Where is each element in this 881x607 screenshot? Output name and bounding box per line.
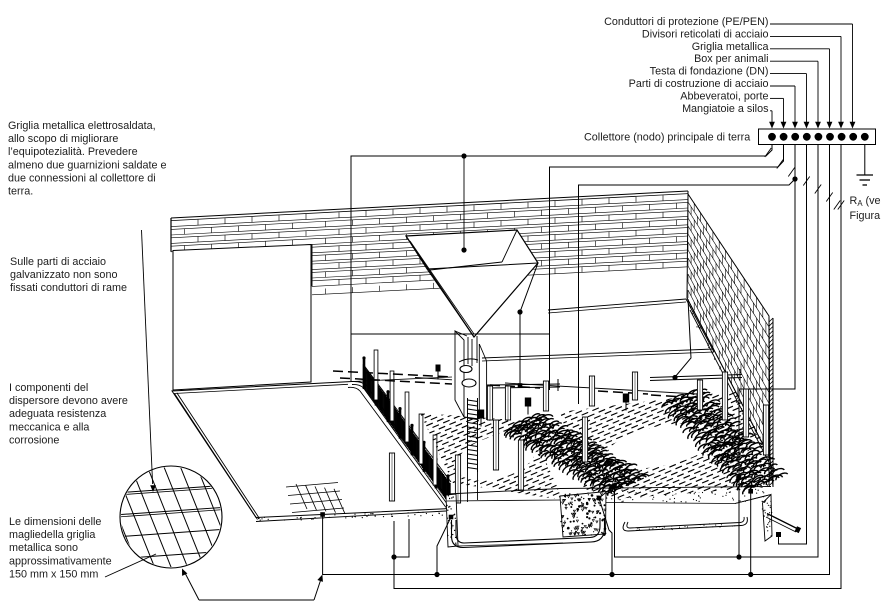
svg-text:Parti di costruzione di acciai: Parti di costruzione di acciaio <box>629 78 769 90</box>
svg-text:due connessioni al collettore: due connessioni al collettore di <box>8 172 156 184</box>
svg-text:Griglia metallica elettrosalda: Griglia metallica elettrosaldata, <box>8 120 156 132</box>
svg-text:terra.: terra. <box>8 186 33 198</box>
svg-text:Testa di fondazione (DN): Testa di fondazione (DN) <box>650 66 769 78</box>
svg-text:150 mm x 150 mm: 150 mm x 150 mm <box>9 568 98 580</box>
svg-text:galvanizzato non sono: galvanizzato non sono <box>10 269 117 281</box>
svg-text:fissati conduttori di rame: fissati conduttori di rame <box>10 282 127 294</box>
svg-text:adeguata resistenza: adeguata resistenza <box>9 408 106 420</box>
svg-text:Griglia metallica: Griglia metallica <box>692 41 769 53</box>
svg-text:Sulle parti di acciaio: Sulle parti di acciaio <box>10 256 106 268</box>
svg-text:Figura: Figura <box>850 210 881 222</box>
svg-text:l’equipotezialità. Prevedere: l’equipotezialità. Prevedere <box>8 146 138 158</box>
svg-text:Abbeveratoi, porte: Abbeveratoi, porte <box>680 90 768 102</box>
svg-text:Le dimensioni delle: Le dimensioni delle <box>9 516 101 528</box>
svg-text:Conduttori di protezione (PE/P: Conduttori di protezione (PE/PEN) <box>604 16 768 28</box>
svg-text:Mangiatoie a silos: Mangiatoie a silos <box>682 103 769 115</box>
svg-text:corrosione: corrosione <box>9 434 59 446</box>
svg-text:Divisori reticolati di acciaio: Divisori reticolati di acciaio <box>642 28 769 40</box>
svg-text:magliedella griglia: magliedella griglia <box>9 529 95 541</box>
svg-text:RA (ved: RA (ved <box>850 195 881 208</box>
svg-text:approssimativamente: approssimativamente <box>9 555 112 567</box>
svg-text:almeno due guarnizioni saldate: almeno due guarnizioni saldate e <box>8 159 166 171</box>
svg-text:Collettore (nodo) principale d: Collettore (nodo) principale di terra <box>584 132 750 144</box>
svg-text:meccanica e alla: meccanica e alla <box>9 421 89 433</box>
svg-text:dispersore devono avere: dispersore devono avere <box>9 395 128 407</box>
svg-text:metallica sono: metallica sono <box>9 542 78 554</box>
svg-text:I componenti del: I componenti del <box>9 382 88 394</box>
svg-text:Box per animali: Box per animali <box>694 53 768 65</box>
svg-text:allo scopo di migliorare: allo scopo di migliorare <box>8 133 118 145</box>
